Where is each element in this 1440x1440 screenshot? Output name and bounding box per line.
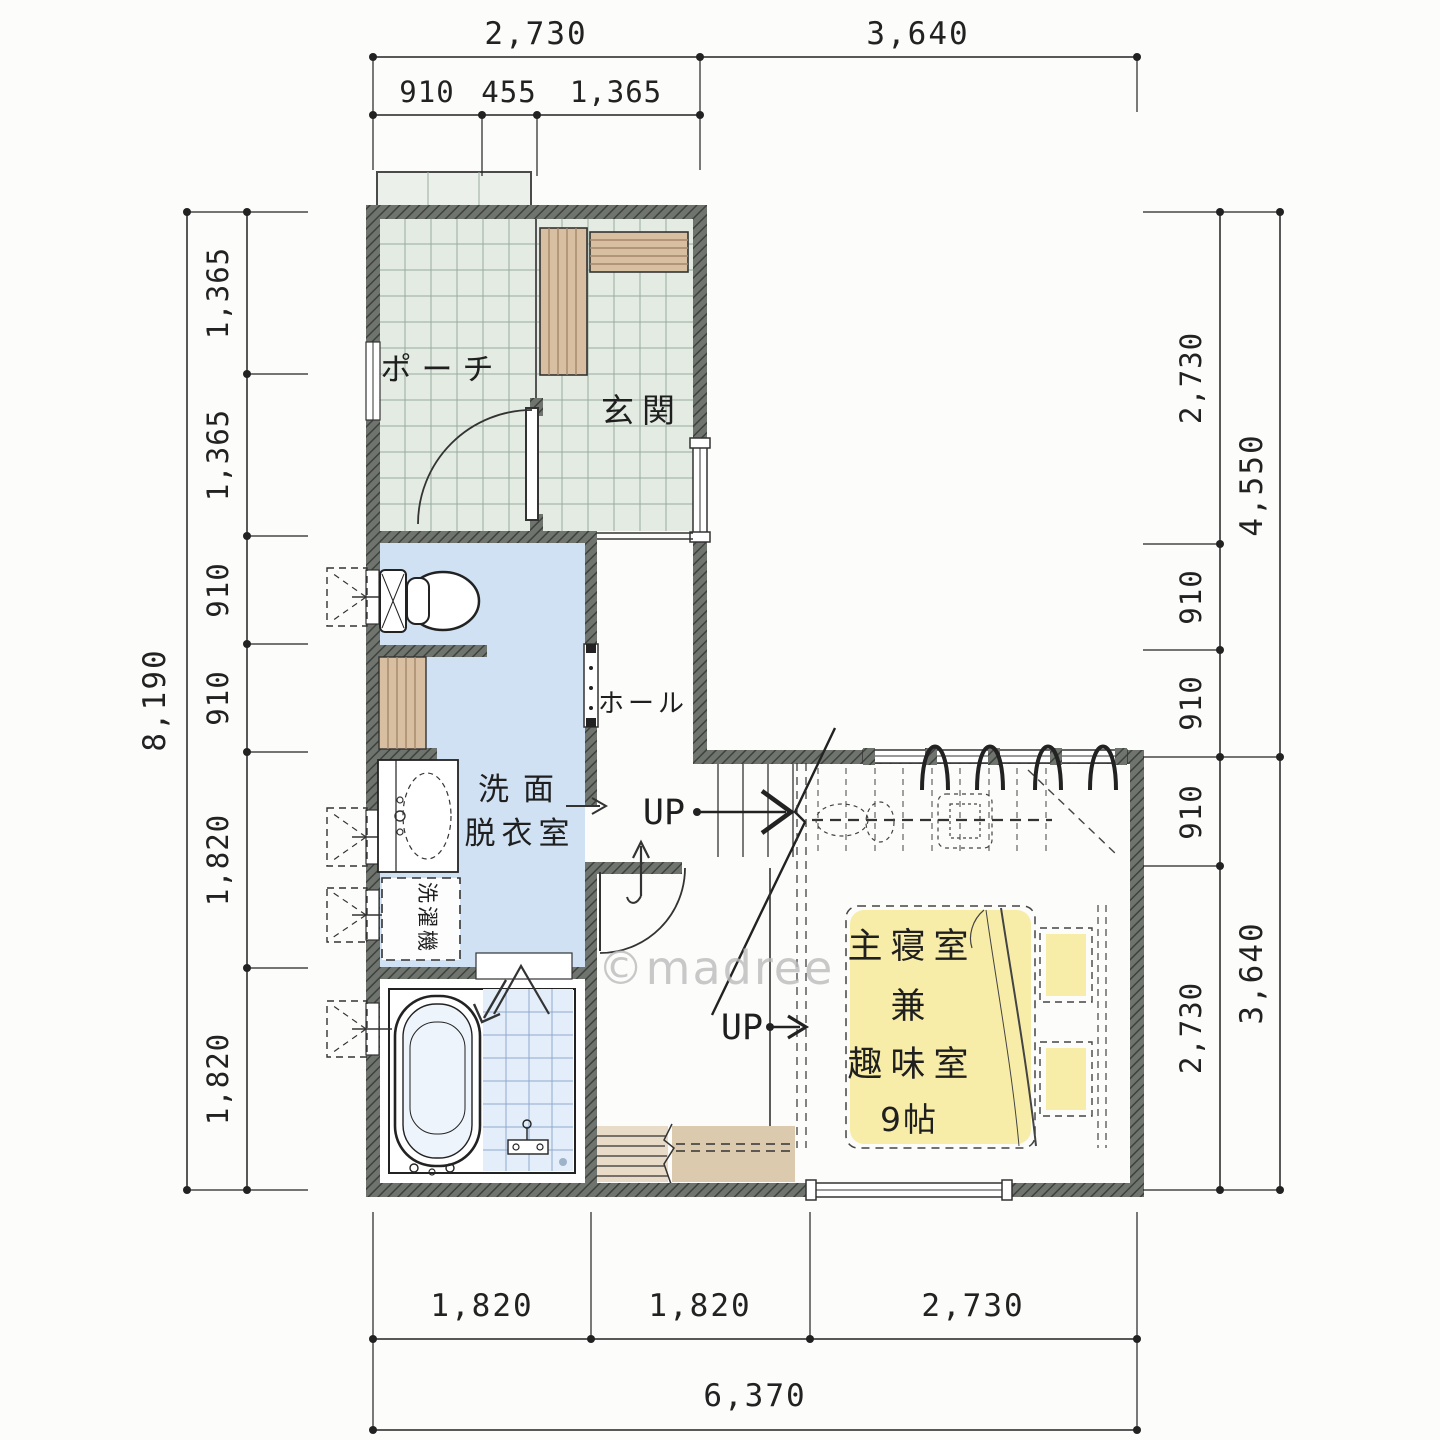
dim-right-outer-2: 3,640	[1234, 921, 1270, 1024]
toilet-fixture	[380, 570, 479, 632]
dim-left-total: 8,190	[137, 648, 173, 751]
dim-top-sub-3: 1,365	[570, 75, 662, 109]
dim-left-6: 1,820	[201, 1033, 235, 1125]
stair-up-arrow-1	[693, 791, 791, 833]
stair-up-arrow-2	[766, 1016, 806, 1038]
dim-right-2: 910	[1174, 569, 1208, 624]
room-label-washroom-1: 洗面	[478, 772, 568, 808]
window-bedroom-bottom	[806, 1180, 1012, 1200]
dim-right-5: 2,730	[1174, 982, 1208, 1074]
dimension-lines	[183, 53, 1284, 1434]
stairs-lower	[597, 1124, 795, 1184]
window-porch-left	[366, 342, 380, 420]
room-label-entry: 玄関	[601, 391, 683, 430]
entry-hall-step	[597, 533, 693, 539]
room-label-washroom-2: 脱衣室	[465, 816, 576, 852]
room-label-hall: ホール	[598, 689, 688, 719]
room-label-porch: ポーチ	[381, 352, 504, 388]
room-label-bedroom-2: 兼	[890, 987, 925, 1027]
watermark: ©madree	[598, 941, 835, 995]
dim-right-outer-1: 4,550	[1234, 433, 1270, 536]
stairs-upper	[712, 728, 835, 1148]
bathtub	[395, 996, 480, 1175]
linen-shelf	[379, 657, 426, 749]
dim-right-1: 2,730	[1174, 332, 1208, 424]
desk	[1040, 905, 1106, 1148]
hall-lower-door	[600, 842, 685, 953]
dim-left-2: 1,365	[201, 409, 235, 501]
dim-bottom-1: 1,820	[430, 1288, 533, 1324]
dim-left-5: 1,820	[201, 814, 235, 906]
dim-left-3: 910	[201, 562, 235, 617]
dim-bottom-3: 2,730	[921, 1288, 1024, 1324]
room-label-bedroom-1: 主寝室	[847, 927, 976, 967]
window-entry-right	[690, 438, 710, 542]
shoe-cabinet	[540, 228, 587, 375]
dim-bottom-2: 1,820	[648, 1288, 751, 1324]
dim-top-sub-1: 910	[399, 75, 454, 109]
dim-bottom-total: 6,370	[703, 1378, 806, 1414]
room-label-bedroom-size: 9帖	[880, 1100, 938, 1139]
dim-left-4: 910	[201, 670, 235, 725]
dim-right-3: 910	[1174, 675, 1208, 730]
dim-top-1: 2,730	[484, 16, 587, 52]
floor-plan-svg: 2,730 3,640 910 455 1,365 8,190 1,365 1,…	[0, 0, 1440, 1440]
dim-left-1: 1,365	[201, 247, 235, 339]
dim-right-4: 910	[1174, 784, 1208, 839]
up-label-1: UP	[643, 793, 685, 833]
room-label-bedroom-3: 趣味室	[847, 1045, 976, 1085]
dim-top-sub-2: 455	[481, 75, 536, 109]
room-label-laundry: 洗濯機	[415, 882, 439, 954]
entry-counter	[590, 232, 688, 272]
floor-plan-page: 2,730 3,640 910 455 1,365 8,190 1,365 1,…	[0, 0, 1440, 1440]
dim-top-2: 3,640	[866, 16, 969, 52]
up-label-2: UP	[721, 1008, 763, 1048]
vanity	[378, 760, 458, 872]
